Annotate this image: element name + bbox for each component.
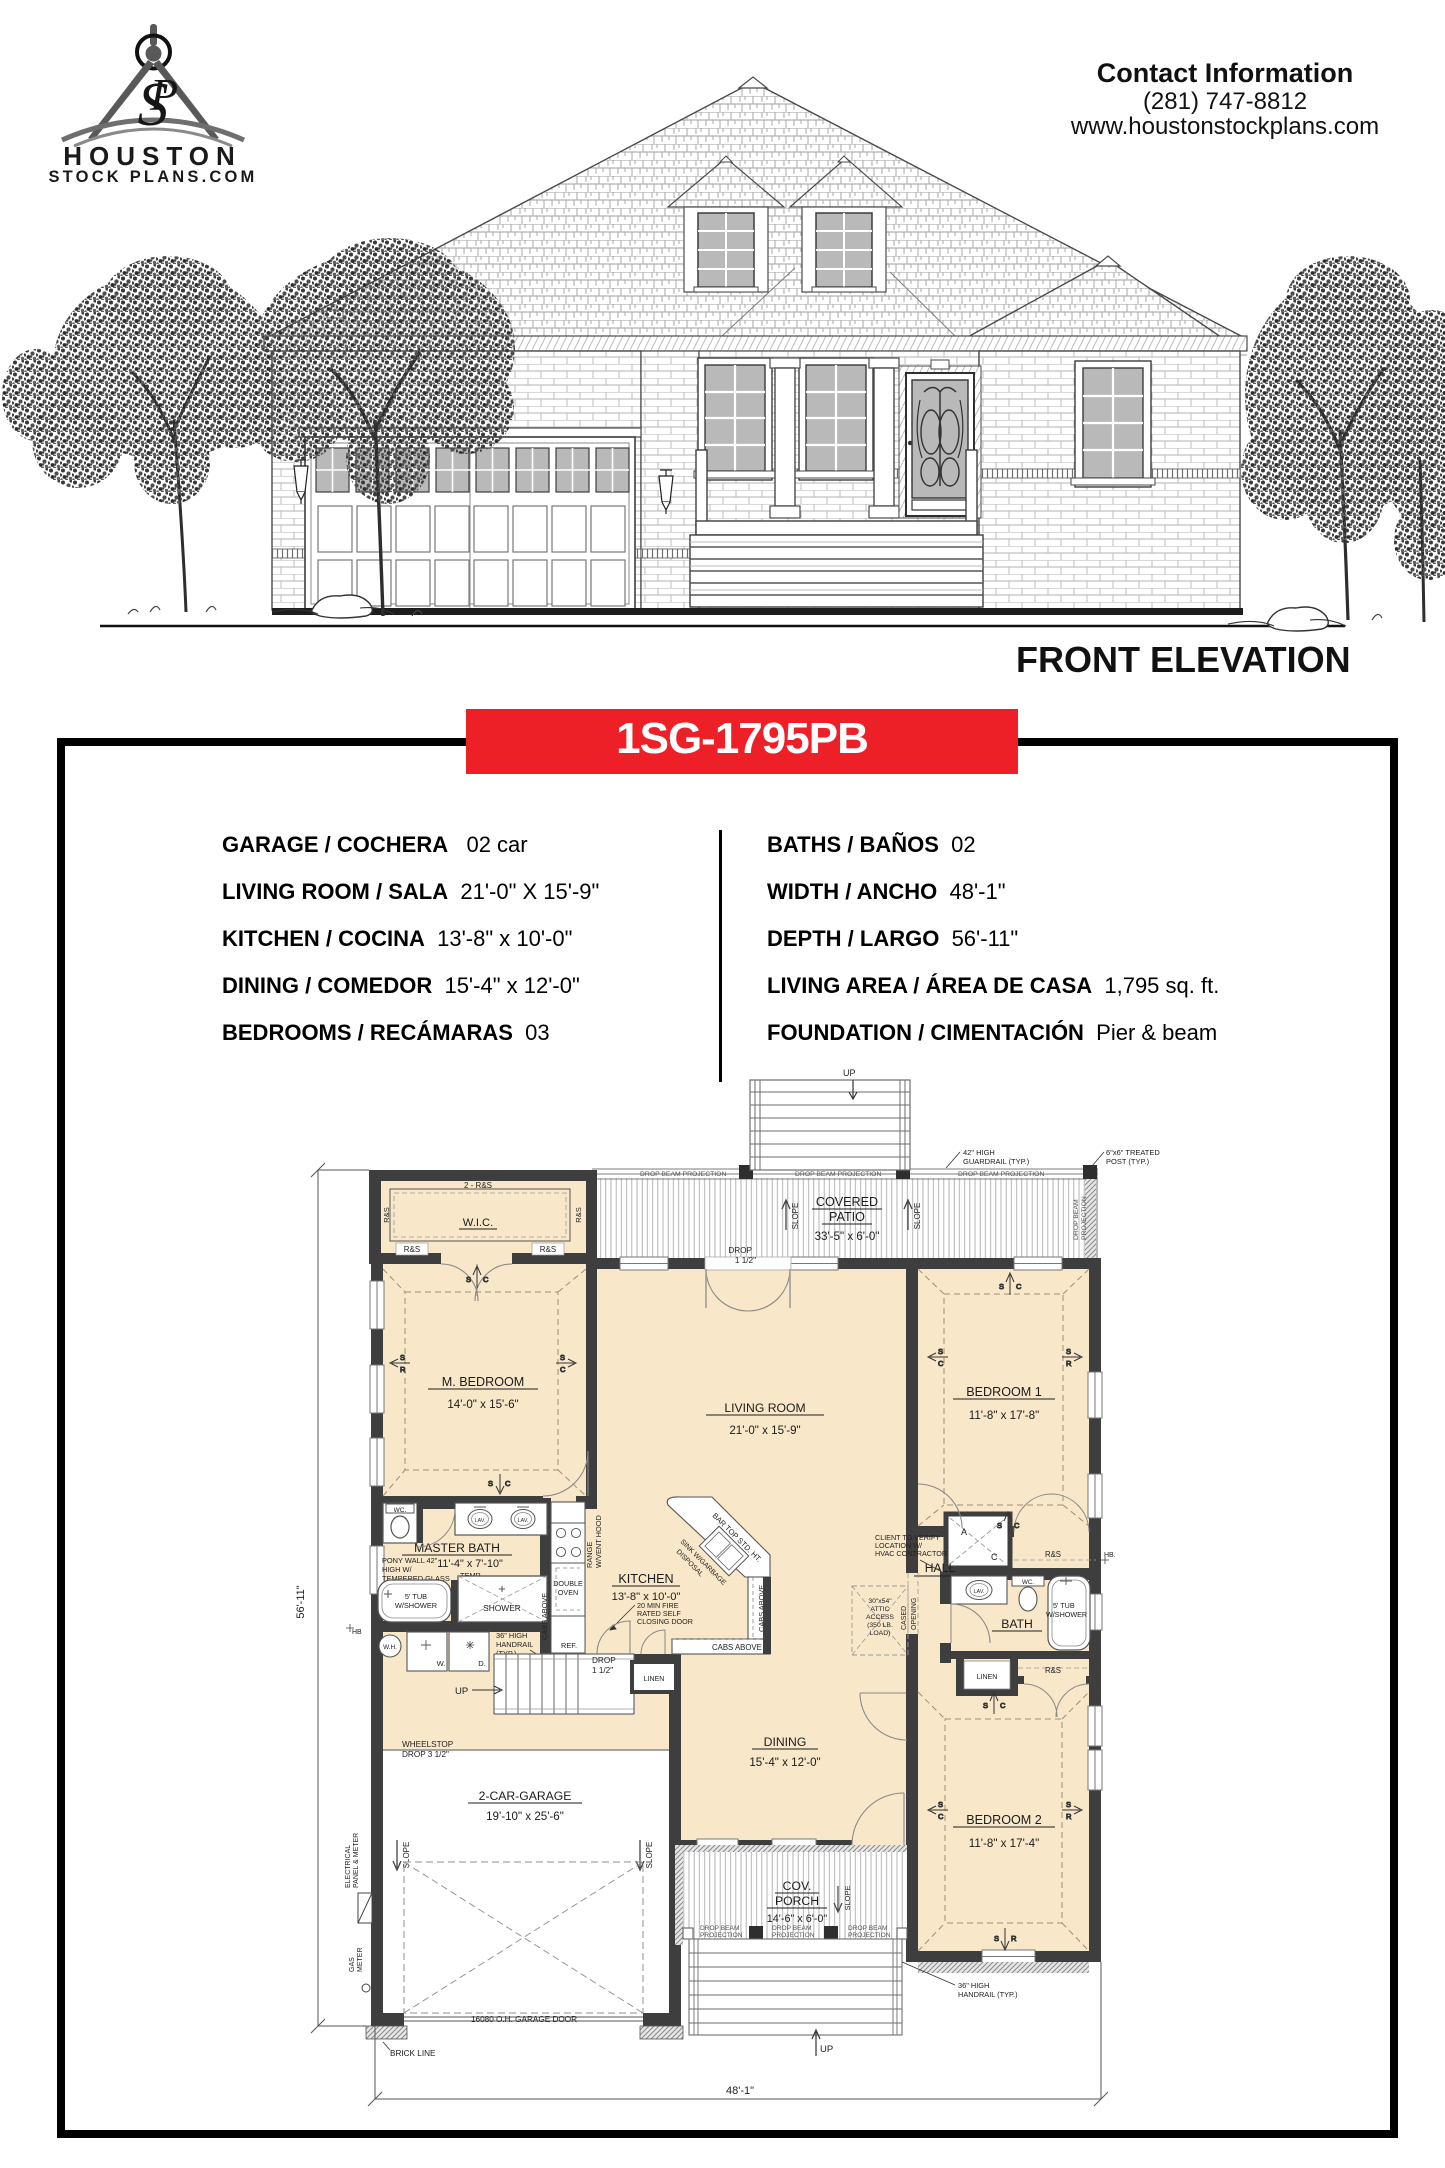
svg-text:15'-4" x 12'-0": 15'-4" x 12'-0"	[749, 1756, 820, 1769]
svg-text:R: R	[400, 1365, 406, 1374]
svg-text:LOAD): LOAD)	[870, 1630, 891, 1637]
svg-text:HALL: HALL	[925, 1561, 956, 1575]
svg-text:CABS ABOVE: CABS ABOVE	[712, 1643, 762, 1652]
svg-text:5' TUB: 5' TUB	[1053, 1601, 1075, 1610]
svg-text:DROP BEAM: DROP BEAM	[772, 1925, 811, 1932]
svg-text:S: S	[400, 1353, 405, 1362]
svg-text:C: C	[938, 1359, 944, 1368]
svg-text:POST (TYP.): POST (TYP.)	[1106, 1157, 1150, 1166]
svg-text:30"x54": 30"x54"	[868, 1598, 892, 1605]
svg-text:S: S	[983, 1701, 988, 1710]
svg-text:DROP 3 1/2": DROP 3 1/2"	[402, 1750, 449, 1759]
svg-text:11'-4" x 7'-10": 11'-4" x 7'-10"	[437, 1558, 503, 1570]
svg-text:UP: UP	[820, 2044, 833, 2055]
svg-text:36" HIGH: 36" HIGH	[496, 1631, 527, 1640]
svg-text:36" HIGH: 36" HIGH	[958, 1981, 989, 1990]
svg-text:LINEN: LINEN	[977, 1674, 998, 1681]
svg-text:SLOPE: SLOPE	[791, 1203, 800, 1230]
svg-text:PORCH: PORCH	[775, 1894, 819, 1908]
svg-text:42" HIGH: 42" HIGH	[963, 1148, 995, 1157]
svg-text:56'-11": 56'-11"	[295, 1585, 307, 1618]
svg-text:R&S: R&S	[540, 1245, 556, 1254]
svg-text:S: S	[466, 1275, 471, 1284]
svg-text:21'-0" x 15'-9": 21'-0" x 15'-9"	[729, 1424, 800, 1437]
svg-text:19'-10" x 25'-6": 19'-10" x 25'-6"	[486, 1810, 564, 1823]
svg-text:S: S	[997, 1521, 1002, 1530]
svg-text:REF.: REF.	[561, 1641, 577, 1650]
svg-text:W/SHOWER: W/SHOWER	[395, 1601, 437, 1610]
svg-text:CABS ABOVE: CABS ABOVE	[540, 1593, 549, 1640]
svg-text:WC.: WC.	[1022, 1579, 1034, 1586]
svg-text:S: S	[560, 1353, 565, 1362]
svg-text:R&S: R&S	[574, 1207, 583, 1222]
svg-text:W/VENT HOOD: W/VENT HOOD	[594, 1515, 603, 1568]
svg-text:C: C	[560, 1365, 566, 1374]
svg-text:CASED: CASED	[901, 1606, 908, 1630]
svg-text:SLOPE: SLOPE	[402, 1842, 411, 1869]
svg-text:DROP BEAM: DROP BEAM	[848, 1925, 887, 1932]
svg-text:DROP BEAM: DROP BEAM	[1073, 1199, 1080, 1240]
svg-text:UP: UP	[843, 1068, 856, 1078]
svg-text:PROJECTION: PROJECTION	[772, 1932, 815, 1939]
svg-text:33'-5" x 6'-0": 33'-5" x 6'-0"	[815, 1230, 880, 1243]
svg-text:C: C	[1014, 1521, 1020, 1530]
svg-text:PROJECTION: PROJECTION	[848, 1932, 891, 1939]
svg-text:S: S	[938, 1347, 943, 1356]
svg-text:14'-0" x 15'-6": 14'-0" x 15'-6"	[447, 1398, 518, 1411]
svg-text:OPENING: OPENING	[911, 1598, 918, 1630]
svg-text:WHEELSTOP: WHEELSTOP	[402, 1740, 454, 1749]
svg-text:1 1/2": 1 1/2"	[592, 1666, 613, 1675]
svg-text:WC.: WC.	[394, 1507, 407, 1514]
svg-text:14'-6" x 6'-0": 14'-6" x 6'-0"	[767, 1913, 828, 1925]
svg-text:GUARDRAIL (TYP.): GUARDRAIL (TYP.)	[963, 1157, 1030, 1166]
svg-text:S: S	[999, 1282, 1004, 1291]
svg-text:UP: UP	[455, 1686, 468, 1697]
svg-text:HB: HB	[352, 1629, 362, 1636]
svg-text:SLOPE: SLOPE	[645, 1842, 654, 1869]
svg-text:DINING: DINING	[764, 1735, 807, 1749]
svg-text:R: R	[1011, 1934, 1017, 1943]
svg-text:2 - R&S: 2 - R&S	[464, 1181, 492, 1190]
svg-text:W.H.: W.H.	[383, 1644, 397, 1651]
svg-text:LINEN: LINEN	[644, 1676, 665, 1683]
svg-text:HANDRAIL: HANDRAIL	[496, 1640, 533, 1649]
svg-text:COV.: COV.	[783, 1879, 812, 1893]
svg-text:DROP BEAM PROJECTION: DROP BEAM PROJECTION	[795, 1171, 881, 1178]
svg-text:C: C	[991, 1552, 998, 1562]
svg-text:R&S: R&S	[1045, 1550, 1061, 1559]
svg-text:GAS: GAS	[349, 1957, 356, 1972]
svg-text:RANGE: RANGE	[585, 1542, 594, 1568]
svg-text:2-CAR-GARAGE: 2-CAR-GARAGE	[479, 1789, 572, 1803]
svg-text:KITCHEN: KITCHEN	[618, 1572, 673, 1586]
svg-text:S: S	[994, 1934, 999, 1943]
svg-text:C: C	[483, 1275, 489, 1284]
svg-text:W.: W.	[437, 1659, 446, 1668]
svg-text:11'-8" x 17'-4": 11'-8" x 17'-4"	[969, 1837, 1039, 1850]
svg-text:R: R	[1066, 1359, 1072, 1368]
svg-text:D.: D.	[478, 1659, 486, 1668]
svg-text:SHOWER: SHOWER	[483, 1603, 521, 1613]
svg-text:LAV.: LAV.	[474, 1518, 485, 1524]
svg-text:DOUBLE: DOUBLE	[553, 1579, 583, 1588]
svg-text:ATTIC: ATTIC	[870, 1606, 889, 1613]
svg-text:S: S	[938, 1800, 943, 1809]
svg-text:16080 O.H. GARAGE DOOR: 16080 O.H. GARAGE DOOR	[471, 2015, 577, 2024]
svg-text:R&S: R&S	[382, 1207, 391, 1222]
svg-text:C: C	[1016, 1282, 1022, 1291]
svg-text:R&S: R&S	[404, 1245, 420, 1254]
svg-text:MASTER BATH: MASTER BATH	[414, 1541, 500, 1555]
svg-text:C: C	[1000, 1701, 1006, 1710]
svg-text:R&S: R&S	[1045, 1666, 1061, 1675]
svg-text:CLOSING DOOR: CLOSING DOOR	[637, 1617, 693, 1626]
svg-text:ELECTRICAL: ELECTRICAL	[345, 1845, 352, 1888]
svg-text:OVEN: OVEN	[558, 1588, 578, 1597]
svg-text:(350 LB.: (350 LB.	[867, 1622, 893, 1629]
svg-text:HVAC CONTRACTOR: HVAC CONTRACTOR	[875, 1549, 947, 1558]
svg-text:PROJECTION: PROJECTION	[1081, 1196, 1088, 1240]
svg-text:M. BEDROOM: M. BEDROOM	[442, 1375, 525, 1389]
svg-text:BEDROOM 2: BEDROOM 2	[966, 1813, 1042, 1827]
svg-text:LAV.: LAV.	[517, 1518, 528, 1524]
svg-text:S: S	[1066, 1800, 1071, 1809]
svg-text:BATH: BATH	[1001, 1617, 1033, 1631]
svg-text:11'-8" x 17'-8": 11'-8" x 17'-8"	[969, 1409, 1039, 1422]
svg-text:PONY WALL 42": PONY WALL 42"	[382, 1556, 438, 1565]
svg-text:BEDROOM 1: BEDROOM 1	[966, 1385, 1042, 1399]
svg-text:S: S	[1066, 1347, 1071, 1356]
svg-text:LAV.: LAV.	[973, 1589, 984, 1595]
svg-text:HANDRAIL (TYP.): HANDRAIL (TYP.)	[958, 1990, 1018, 1999]
svg-text:48'-1": 48'-1"	[726, 2085, 754, 2097]
svg-text:C: C	[938, 1812, 944, 1821]
svg-text:SLOPE: SLOPE	[913, 1203, 922, 1230]
svg-text:W/SHOWER: W/SHOWER	[1046, 1610, 1087, 1619]
svg-text:SLOPE: SLOPE	[843, 1885, 852, 1910]
svg-text:1 1/2": 1 1/2"	[735, 1256, 756, 1265]
svg-text:ACCESS: ACCESS	[866, 1614, 894, 1621]
svg-text:S: S	[488, 1479, 493, 1488]
svg-text:6"x6" TREATED: 6"x6" TREATED	[1106, 1148, 1160, 1157]
svg-text:DROP BEAM PROJECTION: DROP BEAM PROJECTION	[958, 1171, 1044, 1178]
svg-text:DROP: DROP	[728, 1246, 752, 1255]
svg-text:HIGH W/: HIGH W/	[382, 1565, 413, 1574]
svg-text:PANEL & METER: PANEL & METER	[353, 1833, 360, 1888]
svg-text:COVERED: COVERED	[816, 1195, 878, 1209]
svg-text:HB.: HB.	[1104, 1552, 1116, 1559]
svg-text:DROP: DROP	[592, 1656, 616, 1665]
svg-text:A: A	[961, 1527, 967, 1537]
svg-text:DROP BEAM PROJECTION: DROP BEAM PROJECTION	[640, 1171, 726, 1178]
svg-text:R: R	[1066, 1812, 1072, 1821]
svg-text:5' TUB: 5' TUB	[405, 1592, 427, 1601]
svg-text:BRICK LINE: BRICK LINE	[390, 2049, 436, 2058]
svg-text:W.I.C.: W.I.C.	[463, 1217, 493, 1229]
svg-text:METER: METER	[357, 1948, 364, 1973]
svg-text:LIVING ROOM: LIVING ROOM	[724, 1401, 805, 1415]
svg-text:C: C	[505, 1479, 511, 1488]
svg-text:PROJECTION: PROJECTION	[700, 1932, 743, 1939]
svg-text:PATIO: PATIO	[829, 1210, 865, 1224]
svg-text:DROP BEAM: DROP BEAM	[700, 1925, 739, 1932]
